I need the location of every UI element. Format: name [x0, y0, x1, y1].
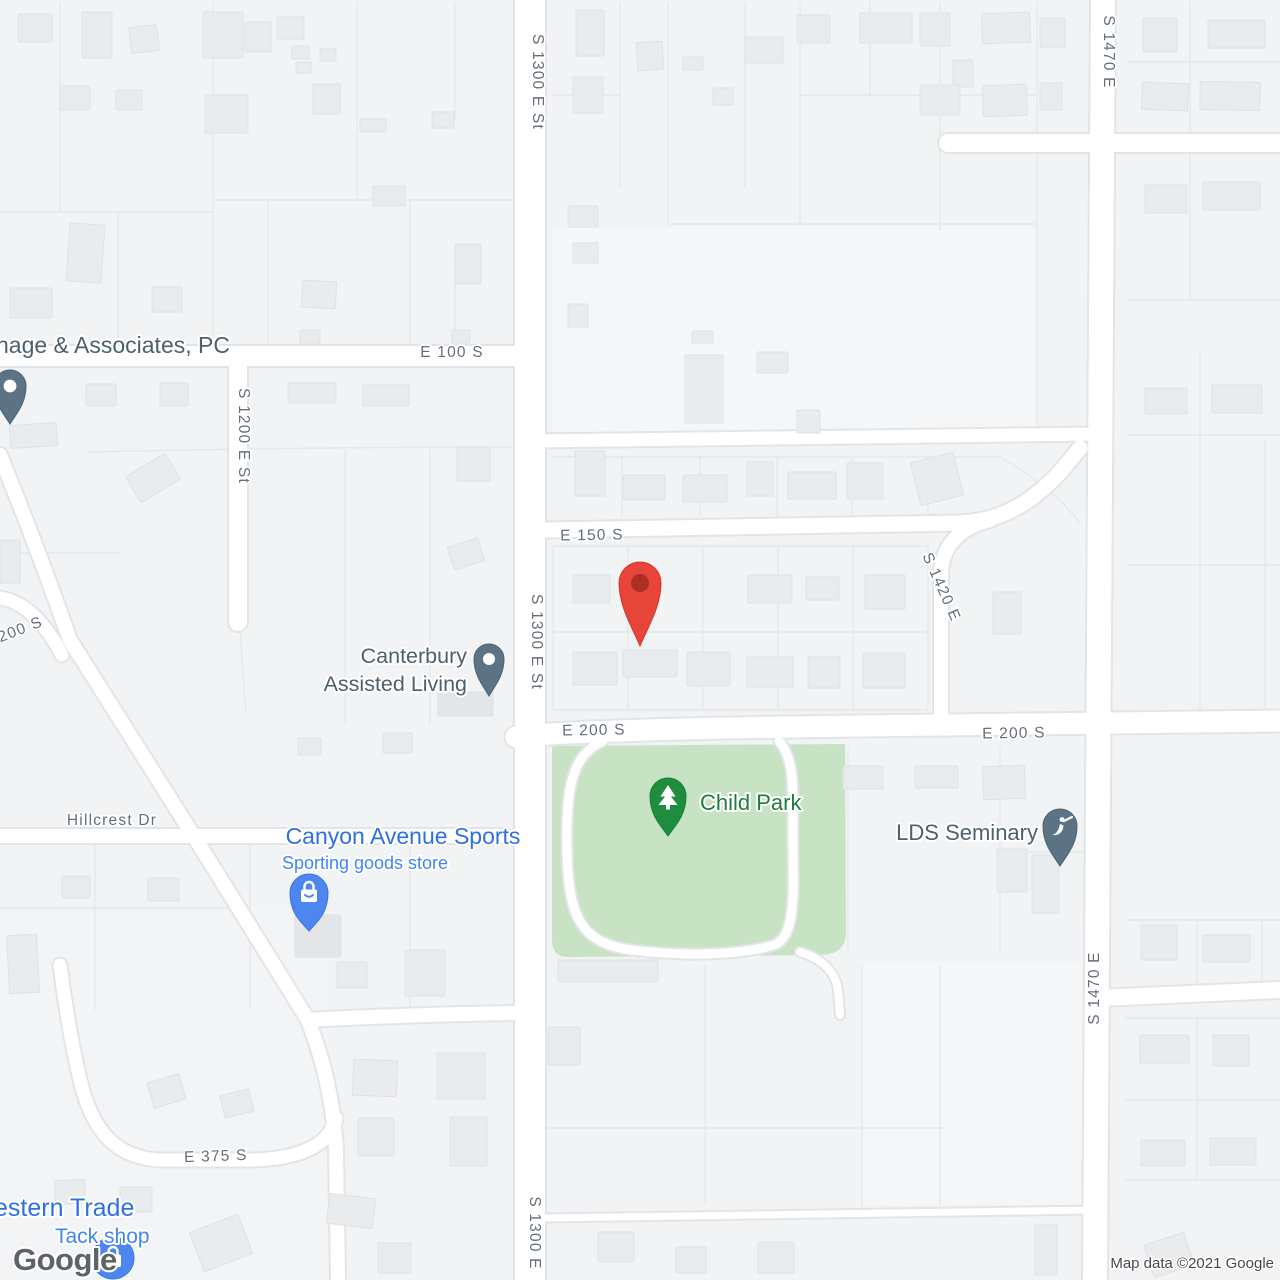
building: [982, 84, 1027, 117]
building: [748, 575, 792, 603]
building: [9, 422, 57, 448]
building: [1212, 385, 1262, 413]
building: [993, 592, 1021, 634]
building: [576, 10, 604, 56]
building: [62, 876, 90, 898]
building: [437, 1053, 485, 1099]
building: [548, 1027, 580, 1065]
building: [997, 849, 1027, 892]
canyon-sports-sublabel[interactable]: Sporting goods store: [282, 853, 448, 873]
building: [300, 330, 320, 343]
building: [982, 765, 1025, 799]
building: [1040, 83, 1062, 110]
street-label: S 1300 E St: [528, 594, 545, 690]
building: [277, 17, 304, 39]
building: [757, 352, 788, 373]
building: [405, 950, 445, 996]
building: [326, 1193, 375, 1228]
building: [558, 960, 658, 982]
canterbury-label-line1[interactable]: Canterbury: [361, 644, 468, 668]
building: [205, 95, 248, 133]
road: [1099, 990, 1280, 998]
building: [292, 46, 309, 59]
building: [573, 575, 610, 603]
building: [623, 475, 665, 500]
building: [60, 86, 90, 110]
building: [66, 223, 105, 283]
building: [685, 355, 723, 423]
building: [745, 37, 783, 63]
building: [18, 14, 52, 42]
building: [86, 384, 116, 406]
map-svg[interactable]: S 1300 E StE 100 SS 1200 E StE 150 SS 14…: [0, 0, 1280, 1280]
street-label: E 150 S: [560, 526, 624, 544]
building: [288, 383, 336, 403]
building: [360, 119, 386, 132]
park-area: [552, 744, 846, 957]
building: [82, 12, 112, 58]
western-trade-label[interactable]: estern Trade: [0, 1194, 134, 1222]
building: [1040, 18, 1065, 47]
building: [806, 577, 839, 600]
building: [1143, 18, 1177, 52]
building: [920, 13, 950, 46]
building: [575, 451, 605, 496]
building: [296, 62, 311, 73]
building: [915, 766, 958, 788]
building: [455, 244, 481, 284]
building: [1035, 1225, 1057, 1275]
building: [797, 410, 820, 433]
building: [337, 962, 367, 988]
building: [863, 653, 905, 688]
street-label: S 1300 E St: [529, 34, 546, 130]
canterbury-label-line2[interactable]: Assisted Living: [324, 672, 467, 696]
building: [378, 1243, 411, 1273]
building: [683, 475, 727, 502]
building: [808, 657, 840, 688]
building: [573, 652, 617, 685]
street-label: E 375 S: [184, 1147, 248, 1166]
building: [747, 657, 793, 687]
map-data-attribution: Map data ©2021 Google: [1110, 1255, 1274, 1272]
building: [116, 90, 142, 110]
building: [152, 287, 182, 312]
building: [1141, 925, 1177, 960]
building: [245, 22, 271, 52]
building: [860, 13, 912, 43]
pin-dot-icon: [483, 653, 495, 665]
building: [1145, 185, 1187, 213]
building: [687, 652, 730, 686]
building: [636, 41, 664, 71]
building: [1203, 182, 1260, 210]
street-label: S 1470 E: [1086, 951, 1103, 1024]
street-label: E 100 S: [420, 344, 484, 361]
building: [797, 15, 830, 43]
building: [683, 57, 703, 70]
road: [308, 1013, 516, 1020]
road: [530, 434, 1100, 441]
street-label: S 1300 E: [526, 1196, 543, 1269]
street-label: E 200 S: [562, 721, 626, 739]
associates-label[interactable]: nage & Associates, PC: [0, 332, 230, 358]
zone: [862, 962, 1088, 1205]
building: [148, 878, 179, 901]
building: [981, 12, 1030, 44]
building: [573, 77, 603, 113]
building: [1140, 1035, 1189, 1063]
building: [623, 650, 677, 677]
building: [352, 1059, 397, 1097]
pin-dot-icon: [4, 380, 17, 393]
lds-seminary-label[interactable]: LDS Seminary: [896, 820, 1038, 845]
building: [7, 934, 40, 993]
building: [1210, 1138, 1256, 1165]
building: [0, 540, 20, 583]
map-canvas[interactable]: S 1300 E StE 100 SS 1200 E StE 150 SS 14…: [0, 0, 1280, 1280]
building: [713, 88, 733, 105]
street-label: S 1200 E St: [235, 388, 252, 484]
building: [363, 385, 409, 406]
road: [1095, 0, 1103, 1280]
street-label: Hillcrest Dr: [67, 812, 157, 829]
street-label: S 1470 E: [1100, 15, 1117, 88]
building: [1213, 1035, 1249, 1066]
google-logo[interactable]: Google: [13, 1242, 117, 1277]
building: [1142, 82, 1189, 111]
building: [1203, 935, 1250, 962]
building: [10, 288, 52, 318]
building: [568, 304, 588, 327]
zone: [553, 228, 1037, 432]
building: [160, 383, 188, 406]
building: [129, 24, 160, 53]
building: [1032, 855, 1059, 913]
building: [920, 85, 960, 115]
building: [320, 49, 336, 61]
building: [598, 1232, 634, 1262]
building: [1141, 1140, 1185, 1166]
building: [1200, 81, 1260, 110]
building: [953, 60, 973, 87]
building: [568, 206, 598, 227]
building: [847, 463, 883, 499]
child-park-label[interactable]: Child Park: [700, 790, 802, 815]
building: [692, 331, 713, 343]
building: [747, 462, 773, 496]
park-polygon: [552, 744, 846, 957]
building: [865, 575, 905, 609]
building: [843, 766, 883, 789]
building: [450, 1117, 487, 1166]
building: [313, 84, 340, 114]
building: [758, 1242, 794, 1273]
building: [1145, 388, 1187, 414]
building: [788, 472, 836, 499]
canyon-sports-label[interactable]: Canyon Avenue Sports: [286, 823, 521, 849]
building: [203, 12, 243, 58]
red-marker-hole: [631, 574, 649, 592]
building: [298, 738, 321, 755]
building: [358, 1118, 394, 1156]
building: [432, 112, 454, 128]
building: [383, 733, 412, 753]
building: [452, 330, 470, 343]
building: [457, 447, 490, 481]
building: [301, 280, 336, 309]
building: [1208, 20, 1265, 48]
street-label: E 200 S: [982, 724, 1046, 742]
building: [373, 186, 405, 206]
building: [573, 243, 598, 263]
building: [676, 1247, 706, 1273]
